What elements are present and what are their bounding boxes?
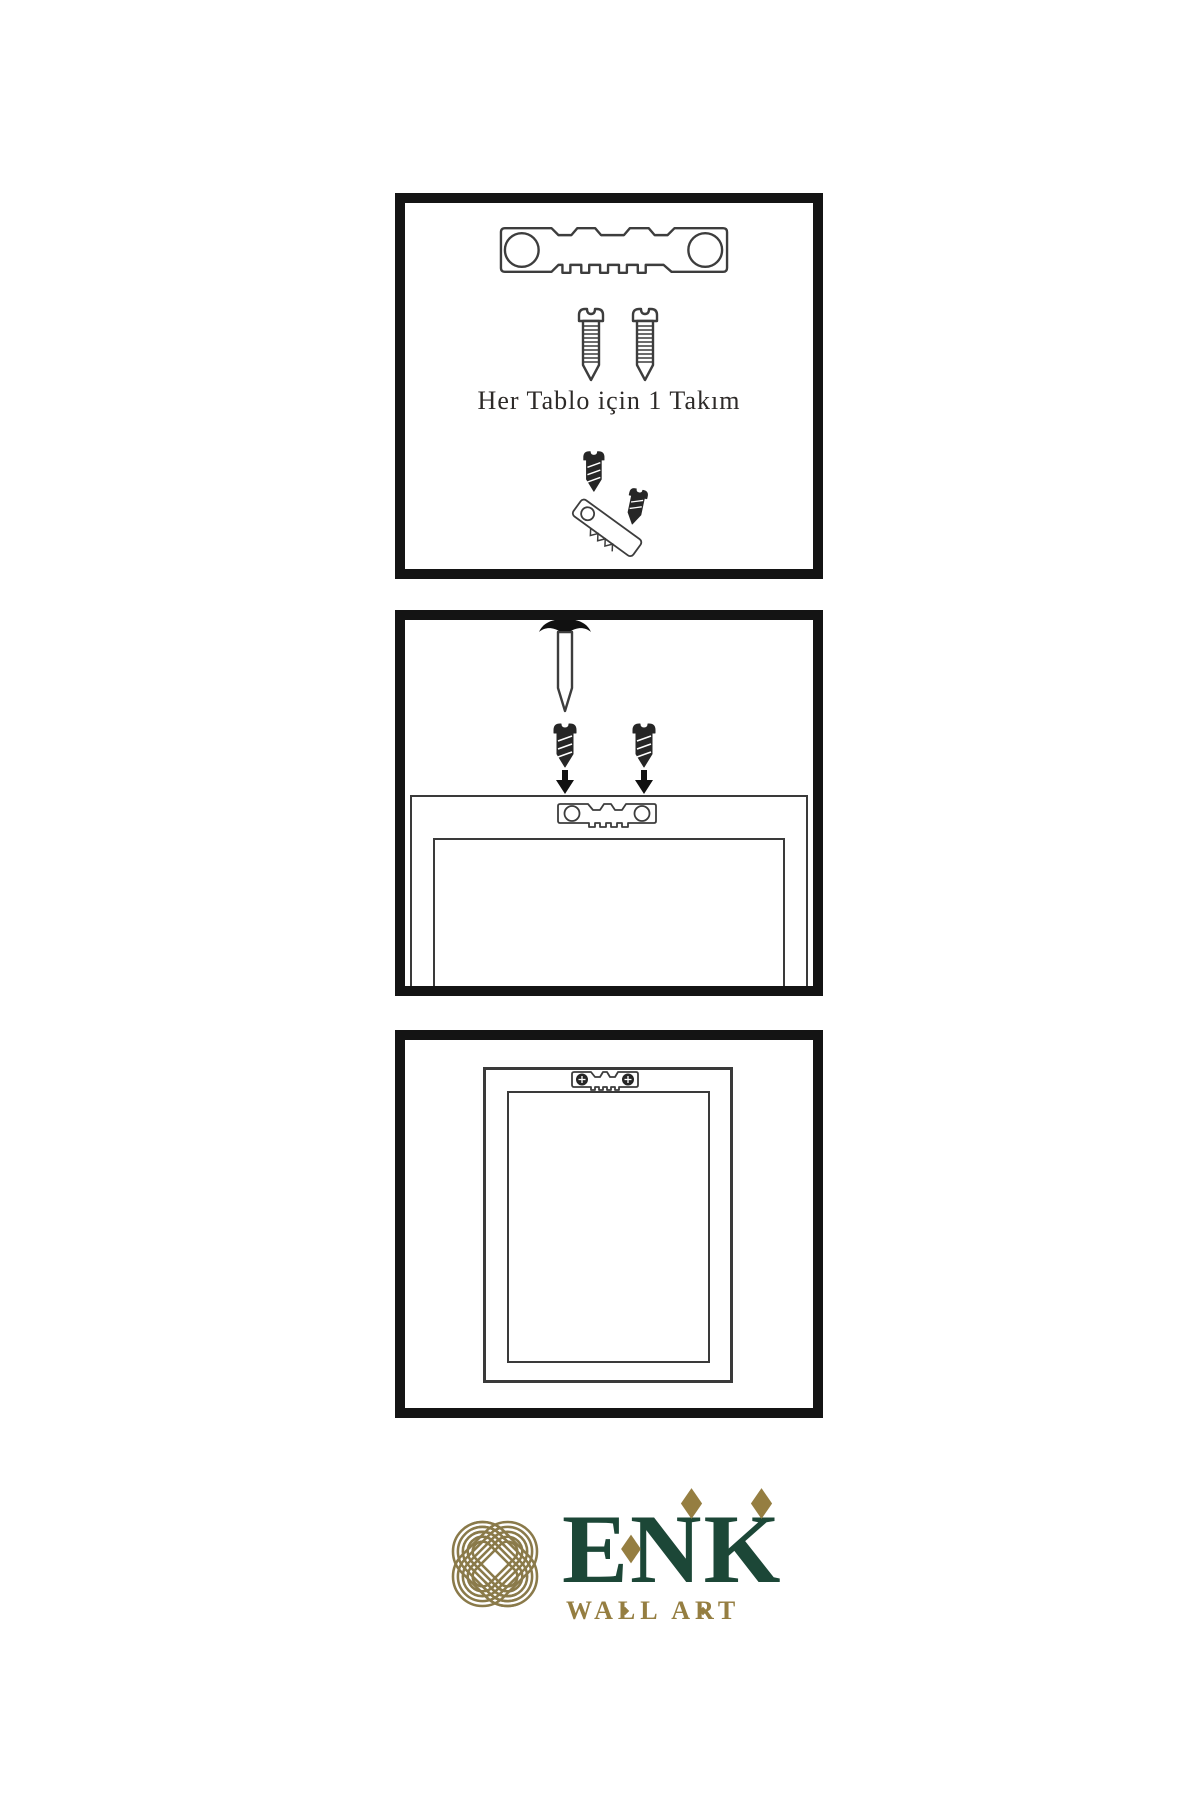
installed-hanger-icon (570, 1069, 640, 1091)
wall-nail-icon (538, 620, 592, 718)
hanger-assembly-icon (563, 446, 665, 560)
screw-icon (627, 303, 663, 387)
step-3-panel (395, 1030, 823, 1418)
knot-logo-icon (436, 1502, 554, 1626)
sawtooth-hanger-icon (495, 221, 733, 279)
brand-wordmark-text: ENK (562, 1495, 783, 1604)
hung-frame-inner-outline (507, 1091, 710, 1363)
step-2-panel (395, 610, 823, 996)
kit-caption: Her Tablo için 1 Takım (405, 386, 813, 416)
screw-icon (573, 303, 609, 387)
arrow-down-icon (556, 770, 574, 794)
screw-with-arrow-icon (551, 720, 579, 796)
step-3-content (405, 1040, 813, 1408)
frame-back-inner-outline (433, 838, 785, 986)
screw-with-arrow-icon (630, 720, 658, 796)
arrow-down-icon (635, 770, 653, 794)
brand-subtitle-text: WALL ART (566, 1596, 740, 1625)
brand-wordmark: ENK (562, 1504, 792, 1600)
step-1-panel: Her Tablo için 1 Takım (395, 193, 823, 579)
hanging-instructions-poster: Her Tablo için 1 Takım (0, 0, 1200, 1800)
brand-logo: ENK WALL ART (430, 1496, 790, 1646)
step-1-content: Her Tablo için 1 Takım (405, 203, 813, 569)
brand-subtitle: WALL ART (566, 1596, 786, 1626)
sawtooth-hanger-icon (555, 799, 659, 829)
step-2-content (405, 620, 813, 986)
